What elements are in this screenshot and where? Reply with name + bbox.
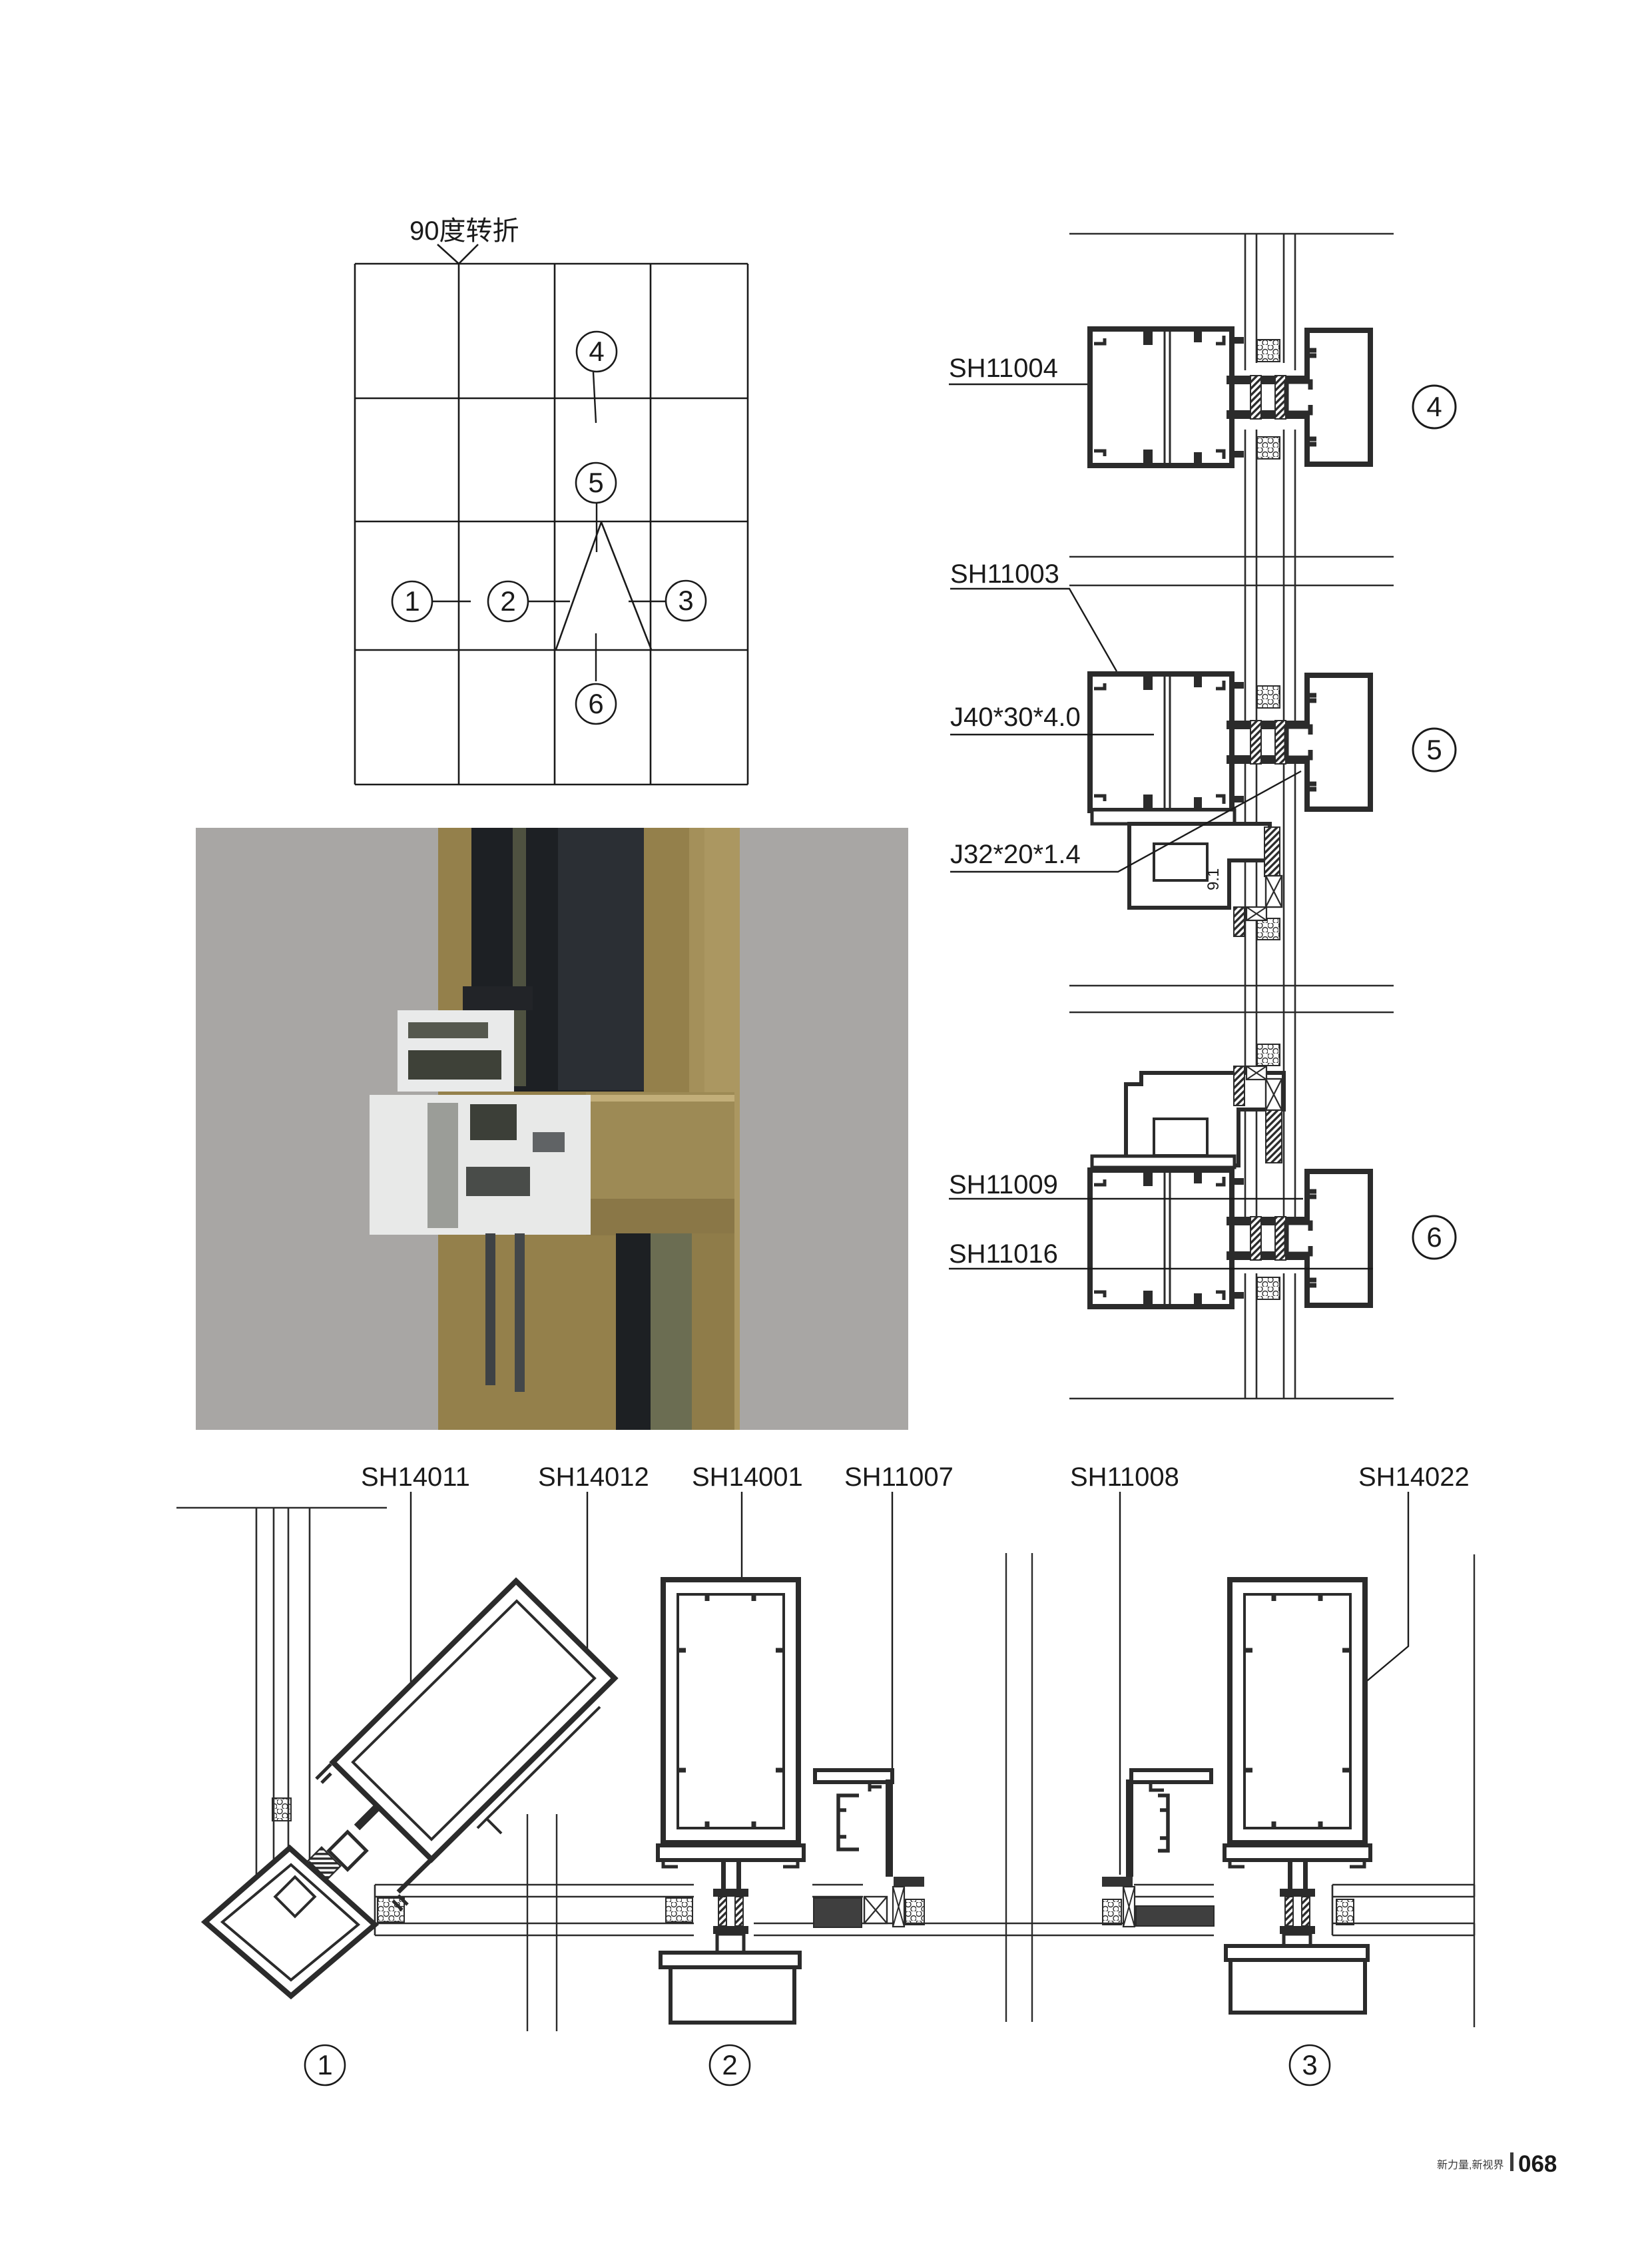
svg-text:1: 1 [404,585,419,617]
svg-text:J40*30*4.0: J40*30*4.0 [950,703,1081,732]
svg-text:5: 5 [588,467,603,498]
svg-text:6: 6 [1426,1221,1442,1253]
svg-text:9.1: 9.1 [1205,868,1223,890]
svg-text:J32*20*1.4: J32*20*1.4 [950,840,1081,869]
svg-text:SH11008: SH11008 [1070,1462,1179,1492]
svg-text:SH11007: SH11007 [844,1462,954,1492]
svg-text:新力量,新视界: 新力量,新视界 [1437,2159,1504,2171]
svg-text:90度转折: 90度转折 [410,216,519,246]
svg-text:3: 3 [678,585,693,616]
svg-text:2: 2 [500,585,515,617]
svg-text:5: 5 [1426,734,1442,765]
svg-text:4: 4 [589,336,604,367]
svg-text:6: 6 [588,688,603,719]
svg-text:068: 068 [1518,2151,1557,2177]
svg-text:SH11016: SH11016 [949,1239,1058,1269]
svg-text:SH14001: SH14001 [692,1462,803,1492]
svg-text:2: 2 [722,2049,737,2081]
svg-text:4: 4 [1426,391,1442,422]
svg-text:SH11003: SH11003 [950,559,1059,589]
svg-text:1: 1 [317,2049,332,2081]
svg-text:SH11009: SH11009 [949,1170,1058,1199]
svg-text:3: 3 [1302,2049,1317,2081]
svg-text:SH14012: SH14012 [538,1462,649,1492]
svg-text:SH14022: SH14022 [1358,1462,1470,1492]
svg-text:SH14011: SH14011 [361,1462,470,1492]
svg-text:SH11004: SH11004 [949,354,1058,383]
